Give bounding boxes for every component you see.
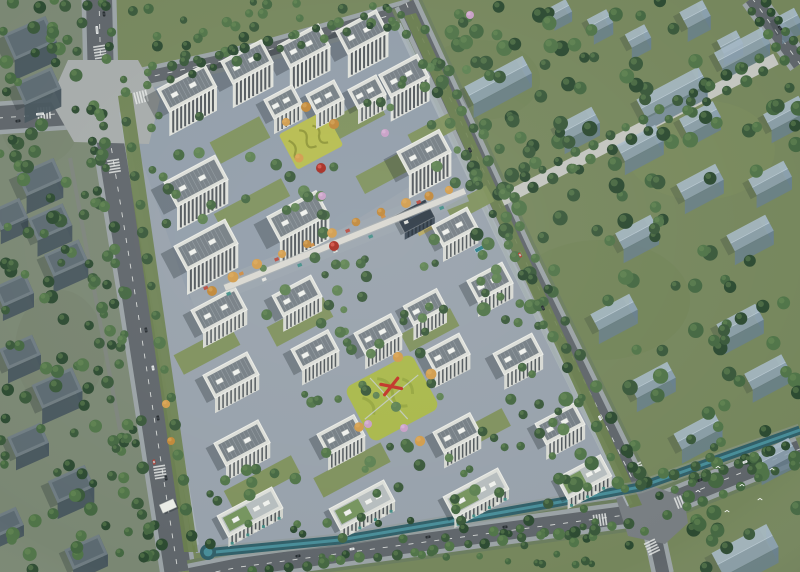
light-vignette: [0, 0, 800, 572]
rendering-canvas: [0, 0, 800, 572]
aerial-masterplan-rendering: [0, 0, 800, 572]
